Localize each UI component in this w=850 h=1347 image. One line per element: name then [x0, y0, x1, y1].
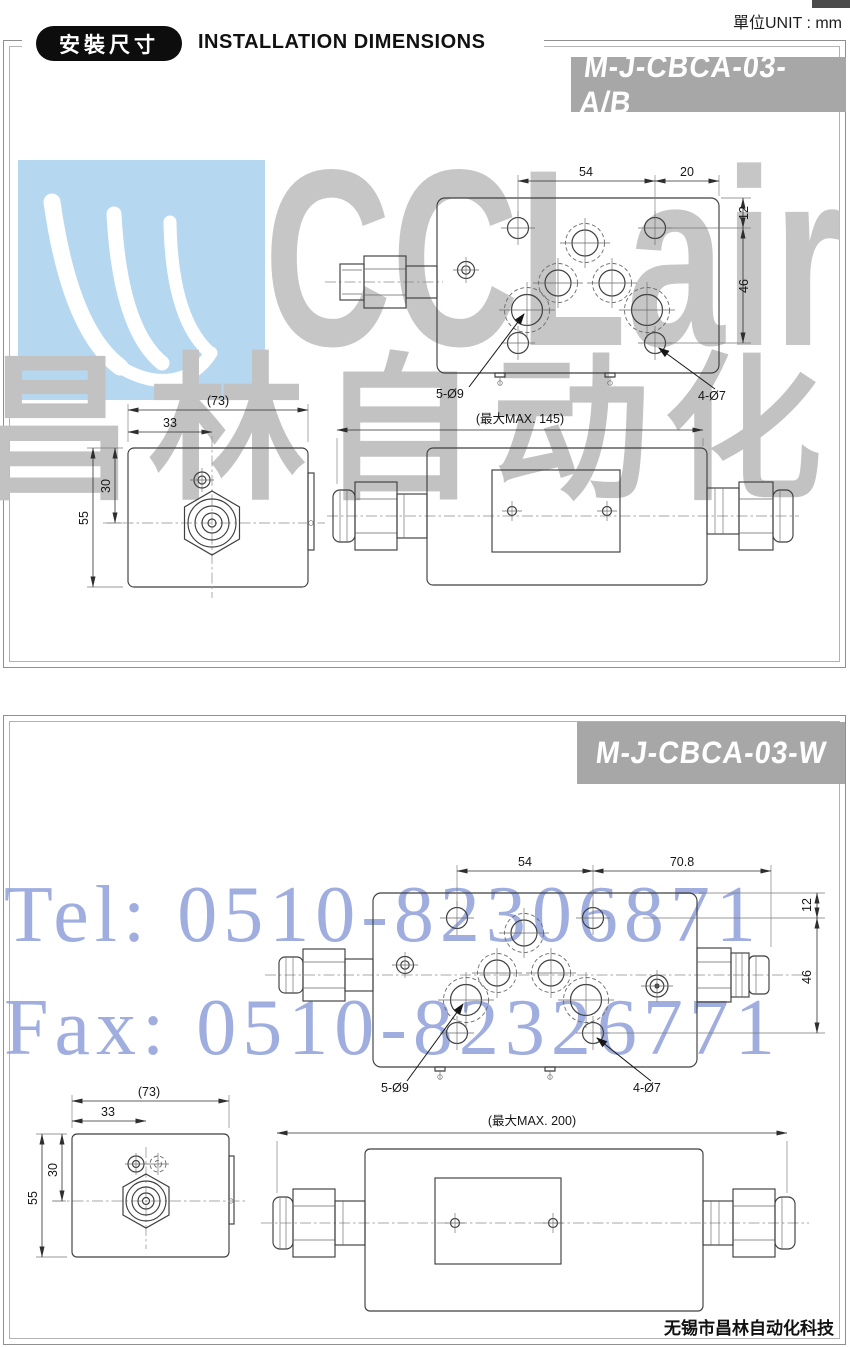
p1-side-view: (73) 33 55 30	[77, 394, 325, 598]
p1-dim-20: 20	[680, 165, 694, 179]
p1-top-view: 54 20 12 46 5-Ø9 4-Ø7	[325, 165, 751, 403]
datasheet-page: 單位UNIT : mm 安裝尺寸 INSTALLATION DIMENSIONS…	[0, 0, 850, 1347]
model-label-w: M-J-CBCA-03-W	[593, 735, 828, 771]
corner-mark	[812, 0, 850, 8]
p1-dim-12: 12	[737, 206, 751, 220]
panel2-drawing: 54 70.8 12 46 5-Ø9 4-Ø7	[3, 715, 847, 1345]
p1-dim-55: 55	[77, 511, 91, 525]
footer-company: 无锡市昌林自动化科技	[664, 1314, 834, 1339]
p1-holes-5d9: 5-Ø9	[436, 387, 464, 401]
model-badge-w: M-J-CBCA-03-W	[577, 722, 845, 784]
p1-dim-73: (73)	[207, 394, 229, 408]
p2-dim-max200: (最大MAX. 200)	[488, 1114, 576, 1128]
p1-front-view: (最大MAX. 145)	[327, 412, 799, 585]
p1-dim-33: 33	[163, 416, 177, 430]
p1-holes-4d7: 4-Ø7	[698, 389, 726, 403]
p1-dim-46: 46	[737, 279, 751, 293]
p1-dim-max145: (最大MAX. 145)	[476, 412, 564, 426]
model-badge-ab: M-J-CBCA-03-A/B	[571, 57, 846, 112]
p2-dim-30: 30	[46, 1163, 60, 1177]
model-label-ab: M-J-CBCA-03-A/B	[578, 49, 840, 121]
page-title: INSTALLATION DIMENSIONS	[198, 31, 485, 54]
p2-front-view: (最大MAX. 200)	[261, 1114, 809, 1311]
installation-badge-zh: 安裝尺寸	[36, 26, 182, 61]
p2-dim-54: 54	[518, 855, 532, 869]
p2-side-view: (73) 33 55 30	[26, 1085, 247, 1257]
unit-label: 單位UNIT : mm	[733, 9, 842, 33]
p2-dim-46: 46	[800, 970, 814, 984]
p2-holes-5d9: 5-Ø9	[381, 1081, 409, 1095]
panel1-drawing: 54 20 12 46 5-Ø9 4-Ø7	[3, 38, 847, 666]
p2-dim-70-8: 70.8	[670, 855, 694, 869]
p2-dim-33: 33	[101, 1105, 115, 1119]
p2-top-view: 54 70.8 12 46 5-Ø9 4-Ø7	[265, 855, 825, 1095]
p1-dim-54: 54	[579, 165, 593, 179]
p2-dim-73: (73)	[138, 1085, 160, 1099]
p2-dim-55: 55	[26, 1191, 40, 1205]
p1-dim-30: 30	[99, 479, 113, 493]
p2-dim-12: 12	[800, 898, 814, 912]
p2-holes-4d7: 4-Ø7	[633, 1081, 661, 1095]
